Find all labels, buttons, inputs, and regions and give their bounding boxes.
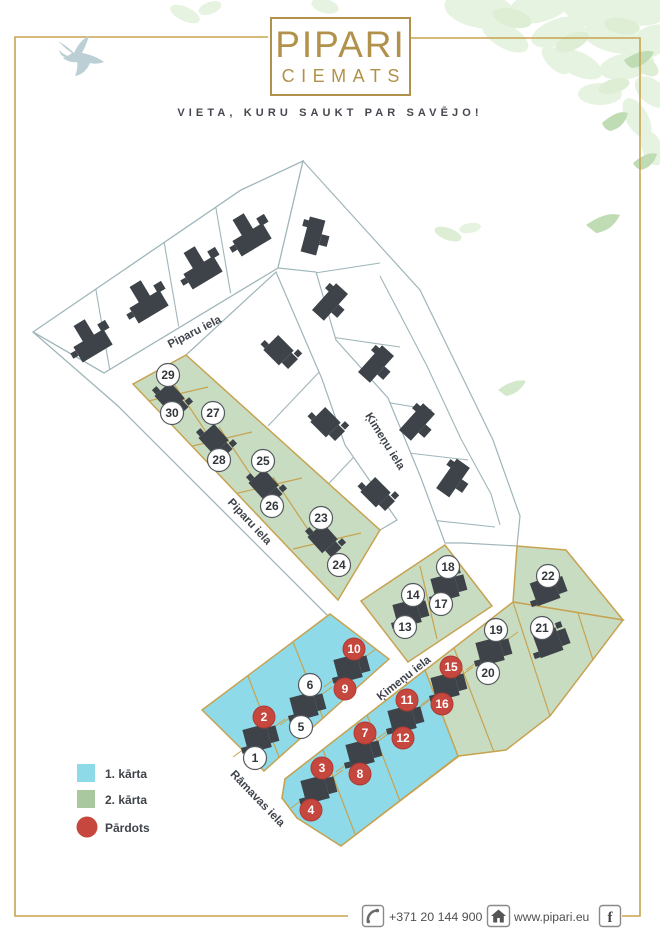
svg-text:24: 24	[332, 558, 346, 572]
svg-text:Pārdots: Pārdots	[105, 821, 150, 835]
svg-text:30: 30	[165, 406, 179, 420]
svg-text:9: 9	[342, 682, 349, 696]
svg-text:19: 19	[489, 623, 503, 637]
svg-text:22: 22	[541, 569, 555, 583]
svg-text:1. kārta: 1. kārta	[105, 767, 147, 781]
svg-text:8: 8	[357, 767, 364, 781]
svg-text:13: 13	[398, 620, 412, 634]
svg-text:5: 5	[298, 720, 305, 734]
svg-text:23: 23	[314, 511, 328, 525]
svg-text:26: 26	[265, 499, 279, 513]
svg-text:25: 25	[256, 454, 270, 468]
svg-text:12: 12	[396, 731, 410, 745]
svg-text:+371 20 144 900: +371 20 144 900	[389, 910, 482, 924]
svg-text:3: 3	[319, 761, 326, 775]
svg-text:16: 16	[435, 697, 449, 711]
svg-text:15: 15	[444, 660, 458, 674]
svg-text:2: 2	[261, 710, 268, 724]
svg-text:18: 18	[441, 560, 455, 574]
svg-text:6: 6	[307, 678, 314, 692]
svg-text:11: 11	[401, 693, 414, 707]
svg-text:28: 28	[212, 453, 226, 467]
svg-text:www.pipari.eu: www.pipari.eu	[513, 910, 589, 924]
svg-text:14: 14	[406, 588, 420, 602]
svg-text:27: 27	[206, 406, 220, 420]
svg-text:Rāmavas iela: Rāmavas iela	[228, 769, 288, 830]
svg-text:21: 21	[535, 621, 549, 635]
svg-text:4: 4	[308, 803, 315, 817]
svg-text:10: 10	[347, 642, 361, 656]
svg-text:7: 7	[362, 726, 369, 740]
svg-text:1: 1	[252, 751, 259, 765]
svg-text:20: 20	[481, 666, 495, 680]
svg-text:17: 17	[434, 597, 448, 611]
svg-text:2. kārta: 2. kārta	[105, 793, 147, 807]
svg-text:29: 29	[161, 368, 175, 382]
